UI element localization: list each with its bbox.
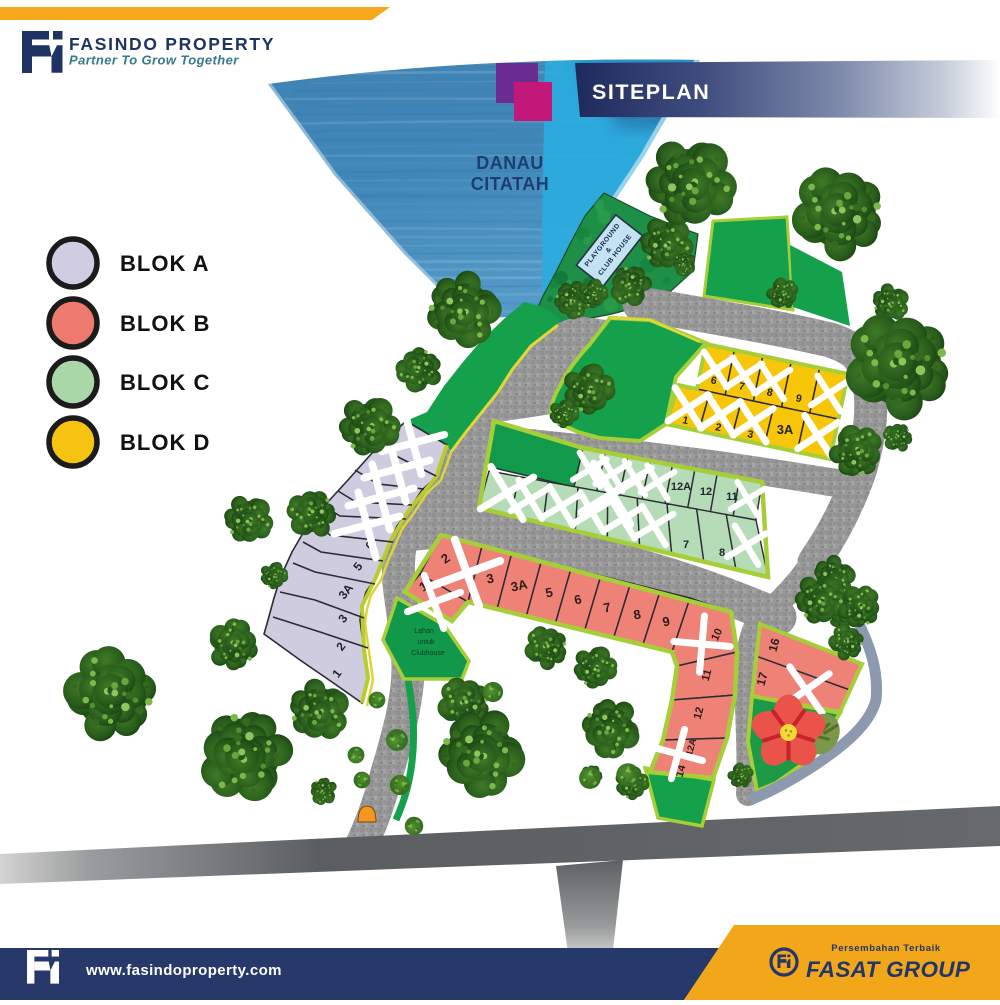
svg-text:FASINDO PROPERTY: FASINDO PROPERTY bbox=[69, 34, 275, 54]
svg-text:7: 7 bbox=[683, 539, 689, 551]
svg-text:11: 11 bbox=[726, 491, 738, 503]
svg-text:3A: 3A bbox=[777, 422, 794, 437]
svg-text:untuk: untuk bbox=[417, 639, 435, 646]
svg-text:12: 12 bbox=[700, 486, 712, 498]
svg-text:BLOK C: BLOK C bbox=[120, 370, 210, 395]
svg-text:www.fasindoproperty.com: www.fasindoproperty.com bbox=[85, 962, 282, 979]
svg-text:BLOK D: BLOK D bbox=[120, 430, 210, 455]
svg-text:CITATAH: CITATAH bbox=[471, 174, 549, 194]
svg-text:12A: 12A bbox=[671, 481, 691, 493]
svg-text:SITEPLAN: SITEPLAN bbox=[592, 80, 710, 104]
svg-text:DANAU: DANAU bbox=[476, 153, 544, 173]
svg-text:Persembahan Terbaik: Persembahan Terbaik bbox=[831, 943, 941, 954]
svg-text:BLOK B: BLOK B bbox=[120, 311, 210, 336]
svg-text:FASAT GROUP: FASAT GROUP bbox=[806, 957, 971, 982]
svg-text:Clubhouse: Clubhouse bbox=[411, 650, 445, 657]
svg-text:BLOK A: BLOK A bbox=[120, 251, 210, 276]
svg-text:Lahan: Lahan bbox=[414, 628, 434, 635]
svg-text:Partner To Grow Together: Partner To Grow Together bbox=[69, 53, 239, 68]
